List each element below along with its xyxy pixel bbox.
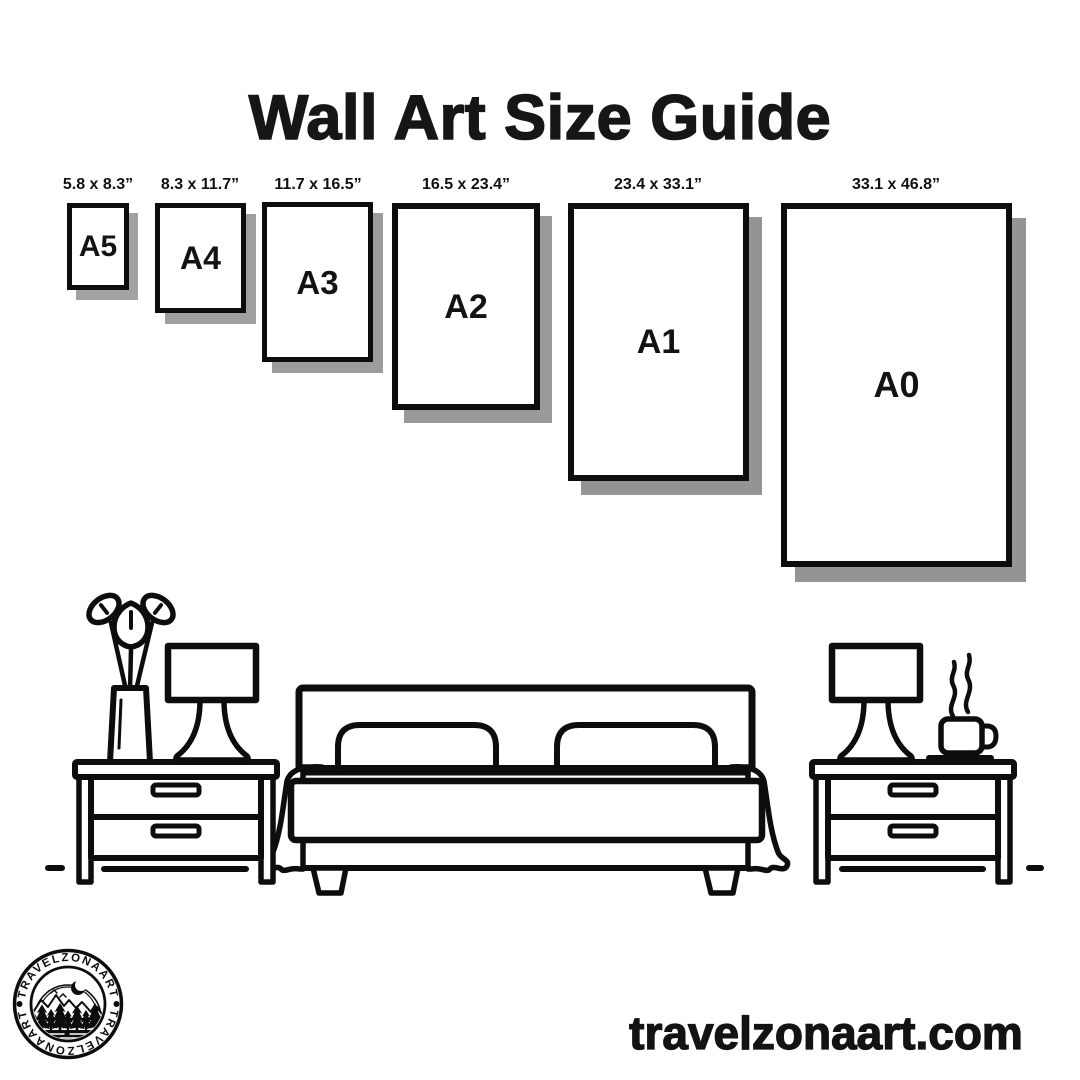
drawer-handle [890,785,936,795]
logo-separator-dot [17,1001,23,1007]
double-bed-icon [263,688,787,893]
website-url: travelzonaart.com [576,1006,1076,1060]
drawer-handle [153,826,199,836]
bedroom-illustration [0,0,1080,1080]
logo-separator-dot [114,1001,120,1007]
drawer-handle [890,826,936,836]
pillow-left [338,725,496,770]
coffee-cup-icon [929,655,996,758]
nightstand-left-icon [75,762,277,882]
table-lamp-right-icon [832,646,920,760]
drawer-handle [153,785,199,795]
bed-leg-right [705,868,738,893]
pillow-right [557,725,715,770]
nightstand-right-icon [812,762,1014,882]
potted-plant-icon [84,590,178,762]
table-lamp-left-icon [168,646,256,760]
wall-art-size-guide: Wall Art Size Guide 5.8 x 8.3” 8.3 x 11.… [0,0,1080,1080]
bed-leg-left [313,868,346,893]
brand-logo-badge: TRAVELZONAART TRAVELZONAART [8,944,128,1064]
